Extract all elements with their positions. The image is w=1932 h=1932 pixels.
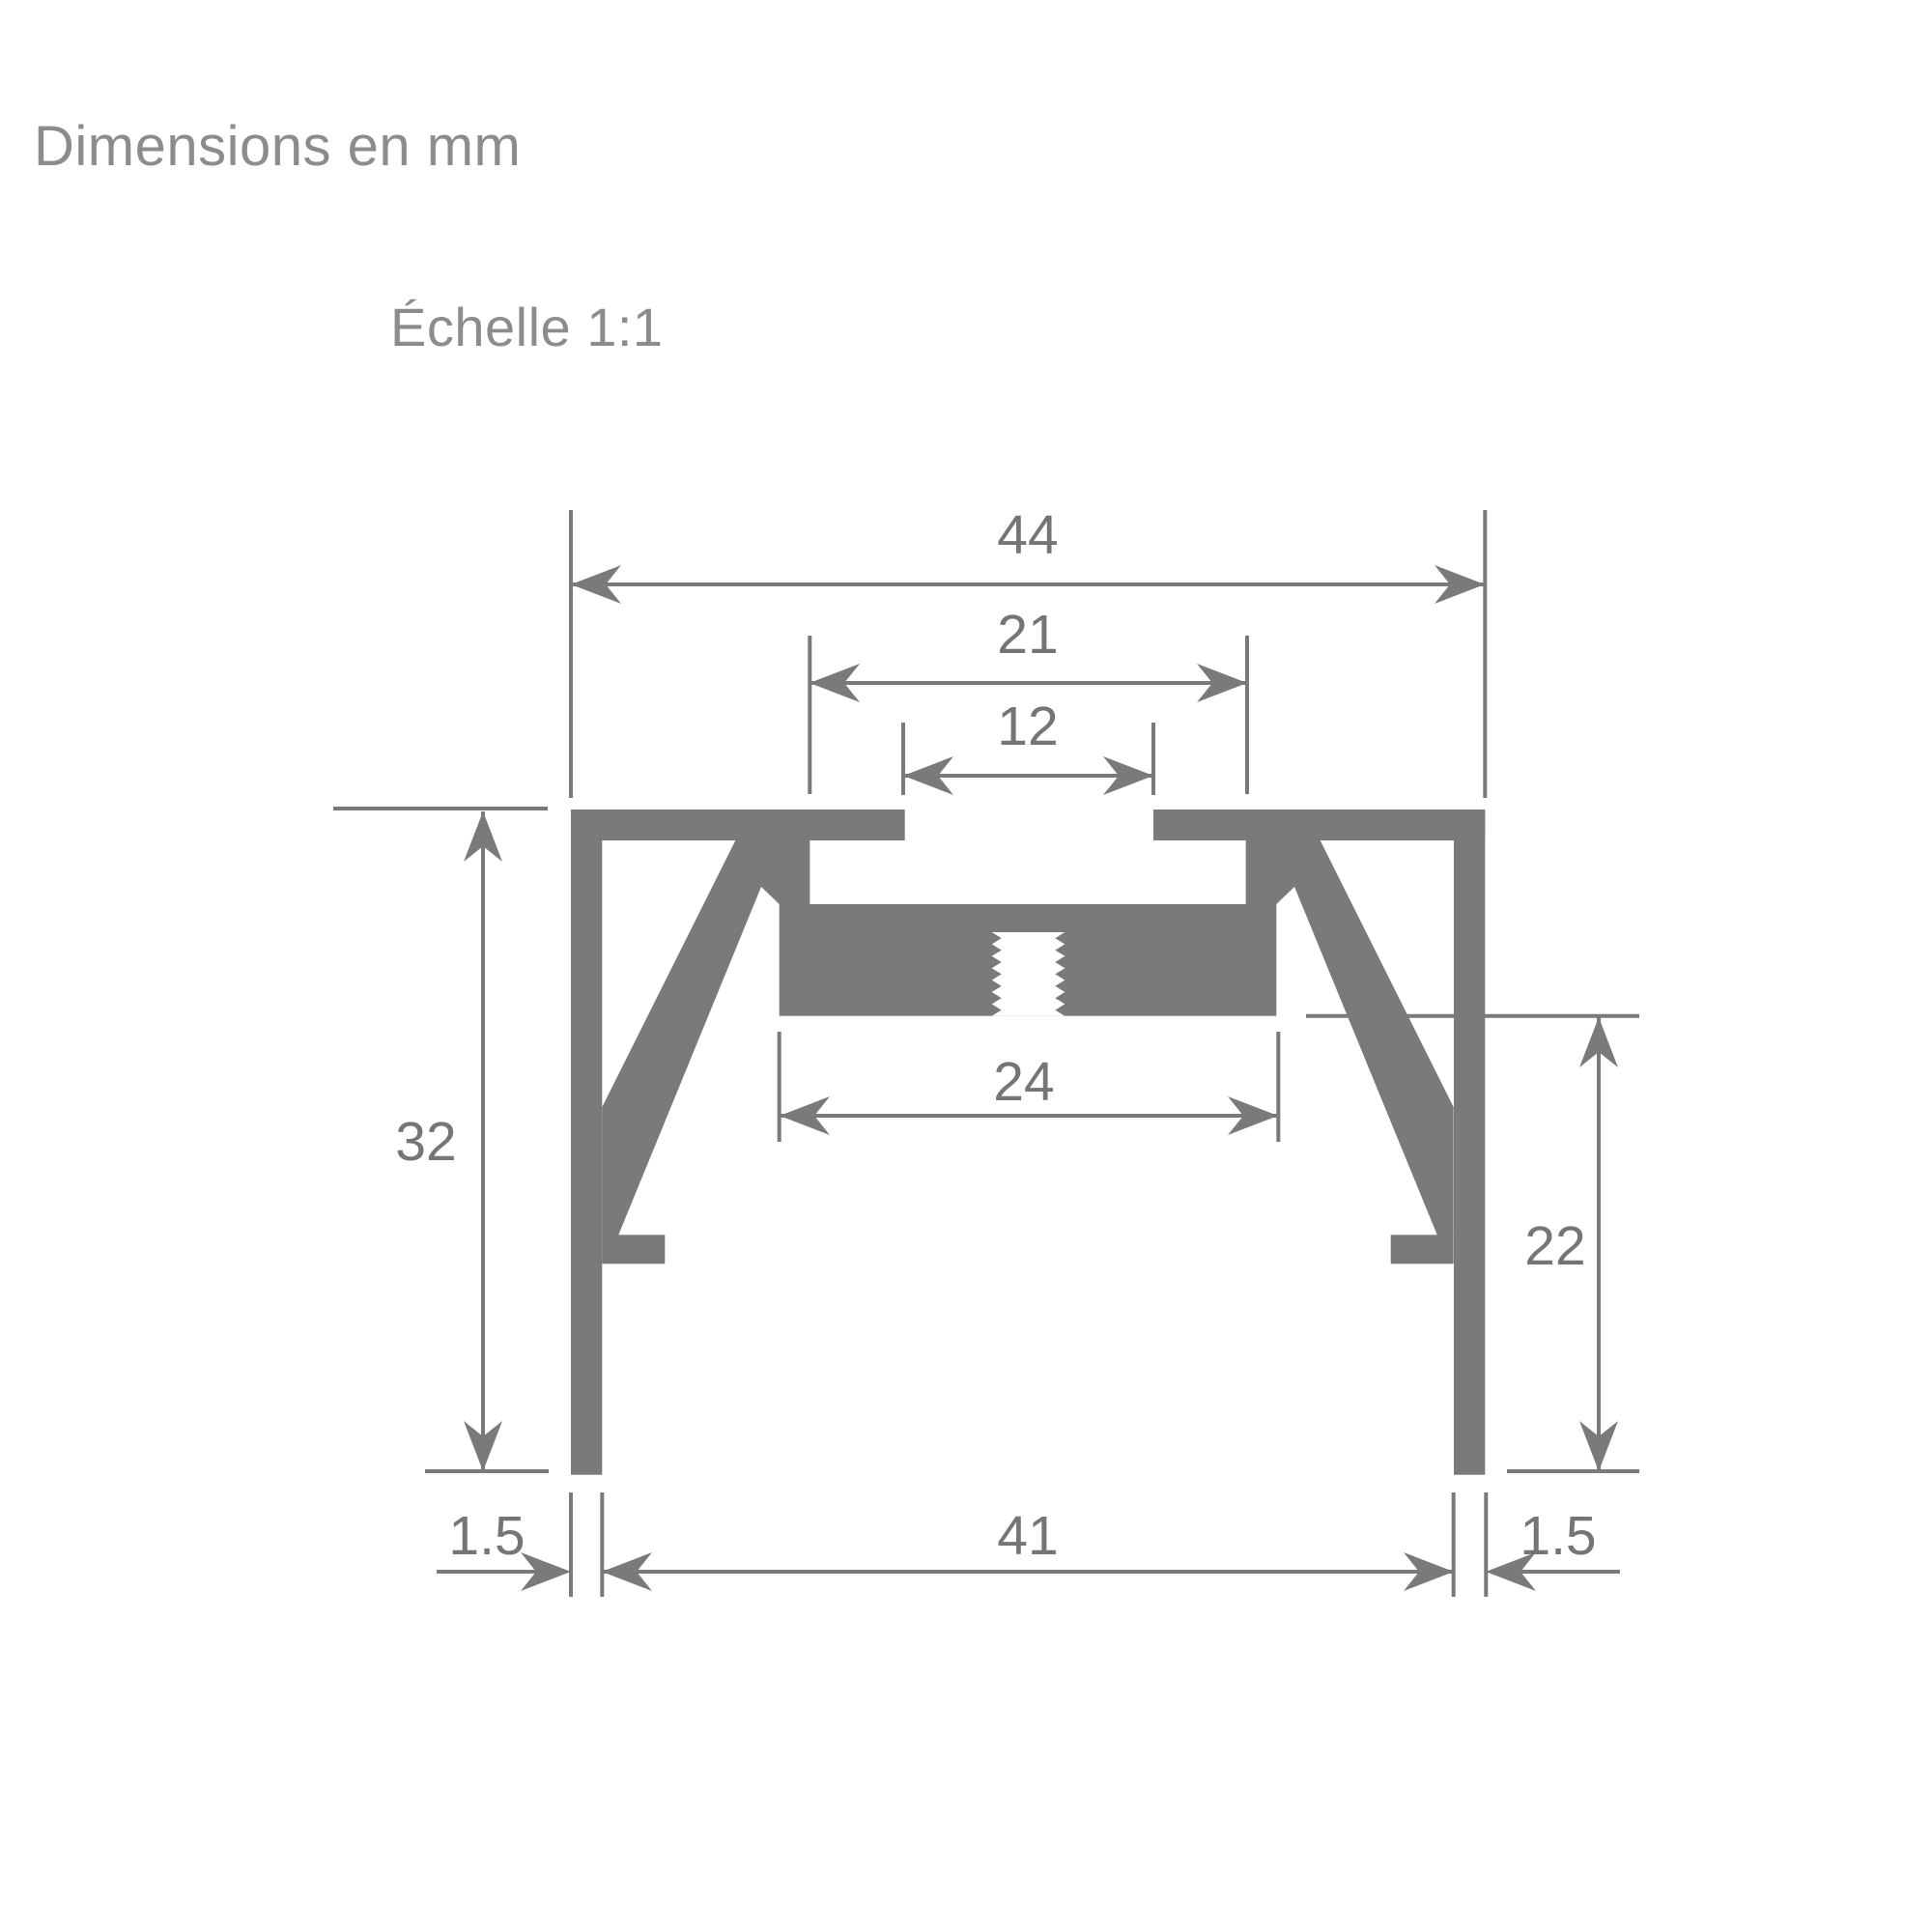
top-flange-left: [571, 810, 905, 840]
profile-section: [571, 810, 1485, 1475]
left-tab: [602, 1235, 665, 1264]
dim-label-slot-width: 12: [997, 696, 1058, 757]
right-wall: [1454, 810, 1485, 1475]
top-flange-right: [1153, 810, 1485, 840]
dim-label-overall-width: 44: [997, 504, 1058, 566]
dim-label-cavity-width: 21: [997, 604, 1058, 666]
profile-drawing: 44 21 12 24 32 22 1.5 41 1.5: [0, 0, 1932, 1932]
dim-label-wall-right: 1.5: [1520, 1505, 1596, 1567]
left-wall: [571, 810, 602, 1475]
dim-label-overall-height: 32: [395, 1111, 456, 1173]
dim-label-wall-left: 1.5: [448, 1505, 525, 1567]
dim-label-inner-gap: 41: [997, 1505, 1058, 1567]
extension-lines: [333, 510, 1639, 1597]
dim-label-block-width: 24: [993, 1051, 1054, 1113]
dim-label-side-height: 22: [1524, 1215, 1585, 1277]
drawing-canvas: Dimensions en mm Échelle 1:1: [0, 0, 1932, 1932]
right-tab: [1391, 1235, 1454, 1264]
thread-channel: [992, 932, 1065, 1016]
